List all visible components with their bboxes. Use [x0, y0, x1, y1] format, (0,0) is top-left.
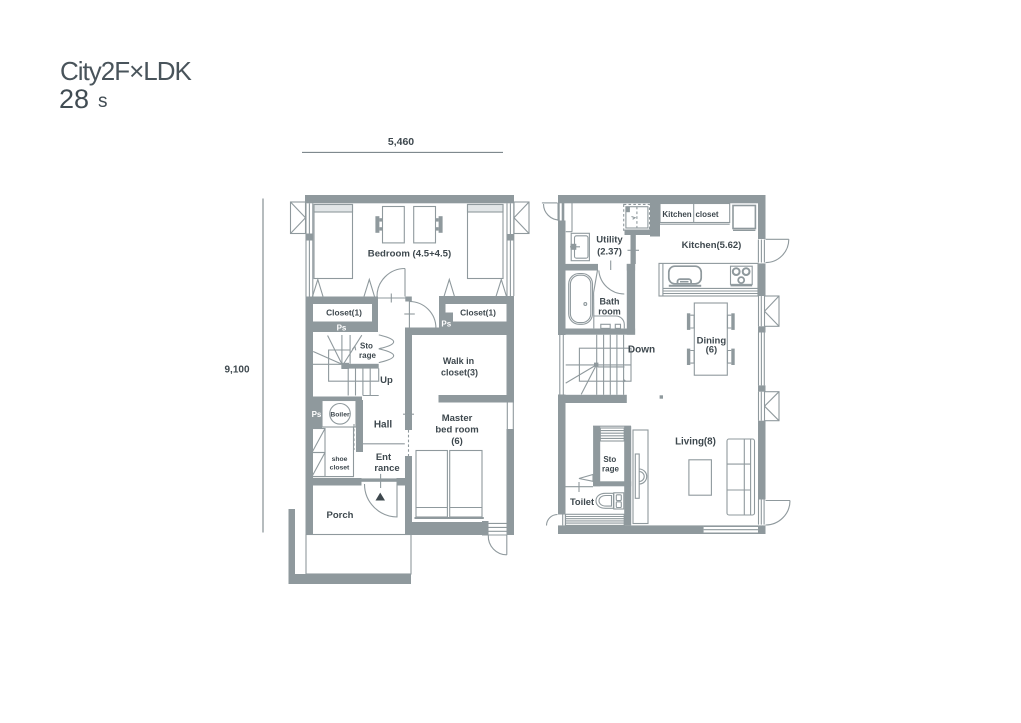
svg-text:Bath: Bath	[600, 297, 620, 307]
svg-text:Closet(1): Closet(1)	[460, 308, 496, 318]
svg-text:bed room: bed room	[435, 425, 478, 436]
svg-text:rage: rage	[359, 351, 376, 360]
svg-text:5,460: 5,460	[388, 136, 414, 148]
svg-text:Porch: Porch	[327, 510, 354, 521]
svg-text:Bedroom (4.5+4.5): Bedroom (4.5+4.5)	[368, 249, 451, 260]
svg-text:s: s	[98, 91, 108, 112]
svg-text:Sto: Sto	[360, 341, 373, 350]
svg-text:closet: closet	[695, 210, 718, 219]
svg-text:rance: rance	[374, 463, 399, 474]
svg-text:Kitchen(5.62): Kitchen(5.62)	[682, 240, 742, 251]
svg-text:Living(8): Living(8)	[675, 437, 716, 448]
svg-text:Boiler: Boiler	[330, 411, 350, 418]
svg-text:Ps: Ps	[312, 410, 322, 419]
svg-text:Ps: Ps	[441, 320, 451, 329]
svg-text:Sto: Sto	[603, 455, 616, 464]
svg-text:(6): (6)	[451, 436, 463, 447]
svg-text:closet(3): closet(3)	[441, 368, 478, 378]
svg-text:Closet(1): Closet(1)	[326, 308, 362, 318]
svg-text:Up: Up	[380, 375, 393, 386]
svg-text:shoe: shoe	[332, 456, 348, 463]
svg-text:Walk in: Walk in	[443, 356, 474, 366]
svg-text:Utility: Utility	[596, 235, 623, 246]
svg-text:Down: Down	[628, 345, 655, 356]
svg-text:28: 28	[59, 84, 89, 114]
svg-text:9,100: 9,100	[224, 365, 249, 376]
svg-text:Hall: Hall	[374, 420, 393, 431]
svg-text:rage: rage	[602, 464, 619, 473]
svg-text:Master: Master	[442, 413, 473, 424]
svg-text:City2F×LDK: City2F×LDK	[60, 56, 193, 86]
svg-text:closet: closet	[330, 465, 350, 472]
svg-text:Toilet: Toilet	[570, 497, 594, 507]
svg-text:Ps: Ps	[337, 324, 347, 333]
svg-text:Ent: Ent	[376, 452, 392, 463]
svg-text:(6): (6)	[706, 345, 718, 356]
svg-text:room: room	[598, 307, 621, 317]
svg-text:(2.37): (2.37)	[597, 247, 622, 258]
svg-text:Kitchen: Kitchen	[662, 210, 691, 219]
